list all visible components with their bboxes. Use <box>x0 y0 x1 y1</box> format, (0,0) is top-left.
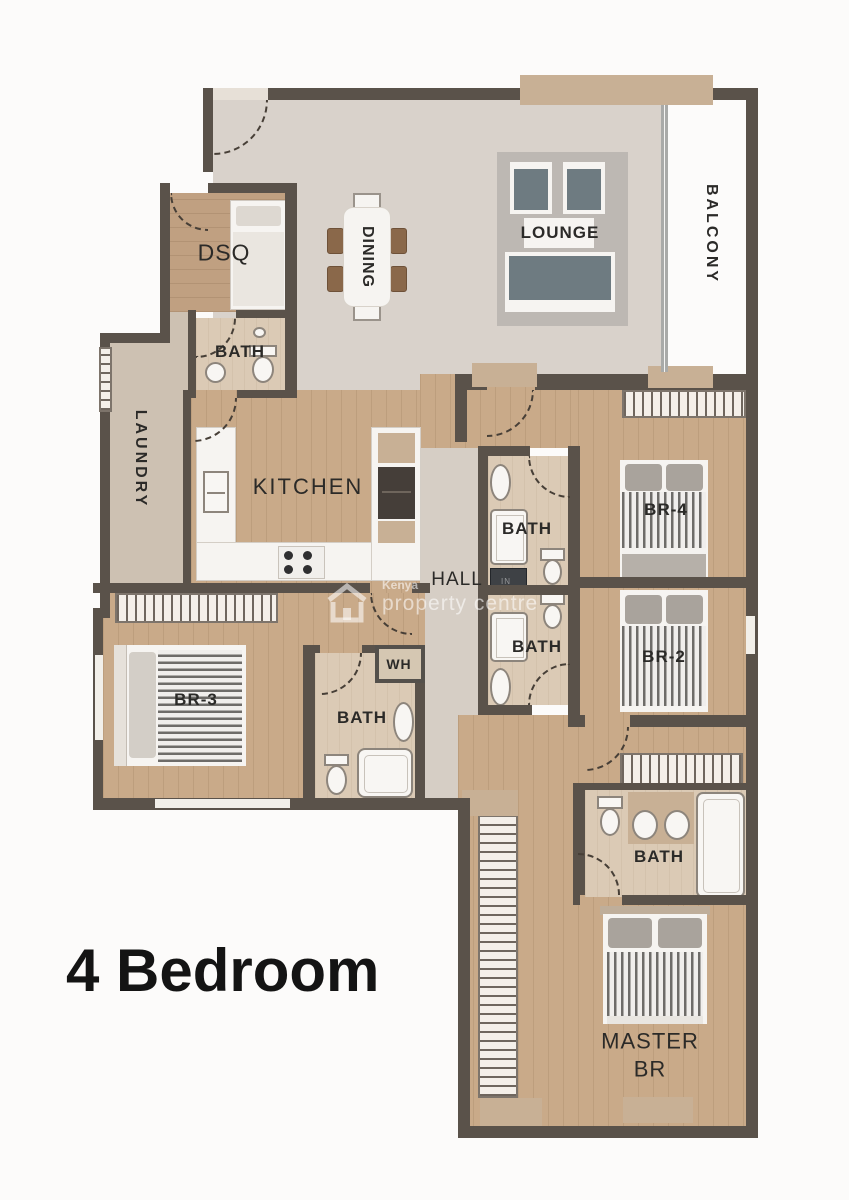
label-master-line2: BR <box>601 1055 699 1083</box>
toilet-bowl <box>600 808 620 836</box>
sink <box>664 810 690 840</box>
floor-plan-canvas: IN <box>0 0 849 1200</box>
page-title: 4 Bedroom <box>66 936 379 1005</box>
label-bath-upper: BATH <box>502 519 552 539</box>
wall <box>570 715 585 727</box>
closet-br3 <box>115 593 278 623</box>
wall <box>160 183 170 343</box>
balcony-glass-door <box>661 105 668 372</box>
window-lintel <box>648 366 713 388</box>
wall <box>478 705 532 715</box>
wall <box>455 384 467 442</box>
sink <box>205 362 226 383</box>
wall <box>570 577 746 588</box>
label-dsq: DSQ <box>198 240 251 267</box>
window-br3-bottom <box>155 799 290 808</box>
label-master-bath: BATH <box>634 847 684 867</box>
dining-chair <box>390 266 407 292</box>
label-br2: BR-2 <box>642 647 686 667</box>
armchair <box>563 162 605 214</box>
closet-br4 <box>622 390 746 418</box>
house-icon <box>322 582 372 624</box>
fridge <box>378 467 415 519</box>
closet-master-side <box>478 815 518 1098</box>
watermark-brand-top: Kenya <box>382 578 418 592</box>
kitchen-cabinet <box>378 521 415 543</box>
wall <box>573 895 580 905</box>
bed-br4 <box>620 460 708 580</box>
wall <box>183 390 191 593</box>
wall <box>568 705 578 715</box>
sink <box>632 810 658 840</box>
wall <box>535 374 758 390</box>
toilet-bowl <box>326 765 347 795</box>
wall <box>208 183 297 193</box>
wall <box>362 645 375 653</box>
watermark-brand-bottom: property centre <box>382 592 538 616</box>
window-br3-left <box>95 655 103 740</box>
dining-chair <box>327 266 344 292</box>
window-lintel <box>472 363 537 387</box>
wall <box>573 783 746 790</box>
label-dining: DINING <box>358 226 376 288</box>
wall <box>622 895 746 905</box>
sink <box>490 668 511 706</box>
label-lounge: LOUNGE <box>521 223 600 243</box>
label-balcony: BALCONY <box>702 184 720 284</box>
label-dsq-bath: BATH <box>215 342 265 362</box>
entry-threshold <box>213 88 268 100</box>
label-master-br: MASTER BR <box>601 1028 699 1083</box>
sofa <box>505 252 615 312</box>
wall <box>237 390 297 398</box>
label-br4: BR-4 <box>644 500 688 520</box>
wall <box>310 645 320 653</box>
wall <box>188 310 196 398</box>
label-br3-bath: BATH <box>337 708 387 728</box>
dining-chair <box>353 305 381 321</box>
wall <box>630 715 758 727</box>
wall <box>746 88 758 1138</box>
window-lintel <box>623 1097 693 1123</box>
label-br3: BR-3 <box>174 690 218 710</box>
dining-chair <box>353 193 381 209</box>
wall <box>236 310 297 318</box>
label-water-heater: WH <box>386 656 411 672</box>
shower <box>357 748 413 798</box>
kitchen-cabinet <box>378 433 415 463</box>
wall <box>285 193 297 398</box>
closet-cap-top <box>462 790 518 816</box>
armchair <box>510 162 552 214</box>
wall <box>458 1126 758 1138</box>
window-laundry <box>99 347 112 412</box>
closet-cap-bottom <box>480 1098 542 1126</box>
wall <box>100 333 170 343</box>
wall <box>303 645 315 800</box>
floor-laundry-patch <box>170 312 188 390</box>
dining-chair <box>327 228 344 254</box>
window-lintel <box>520 75 713 105</box>
stove <box>278 546 325 579</box>
dining-chair <box>390 228 407 254</box>
window-br2-right <box>746 616 755 654</box>
wall <box>458 808 470 1138</box>
label-master-line1: MASTER <box>601 1028 699 1056</box>
wall <box>203 88 213 172</box>
sink <box>393 702 414 742</box>
label-kitchen: KITCHEN <box>253 474 364 500</box>
label-bath-lower: BATH <box>512 637 562 657</box>
sink <box>490 464 511 501</box>
bathtub <box>696 792 745 898</box>
sink <box>253 327 266 338</box>
bed-master <box>603 914 707 1024</box>
label-laundry: LAUNDRY <box>131 410 149 509</box>
kitchen-sink <box>203 471 229 513</box>
closet-master-top <box>620 753 743 785</box>
watermark: Kenya property centre <box>322 578 572 626</box>
